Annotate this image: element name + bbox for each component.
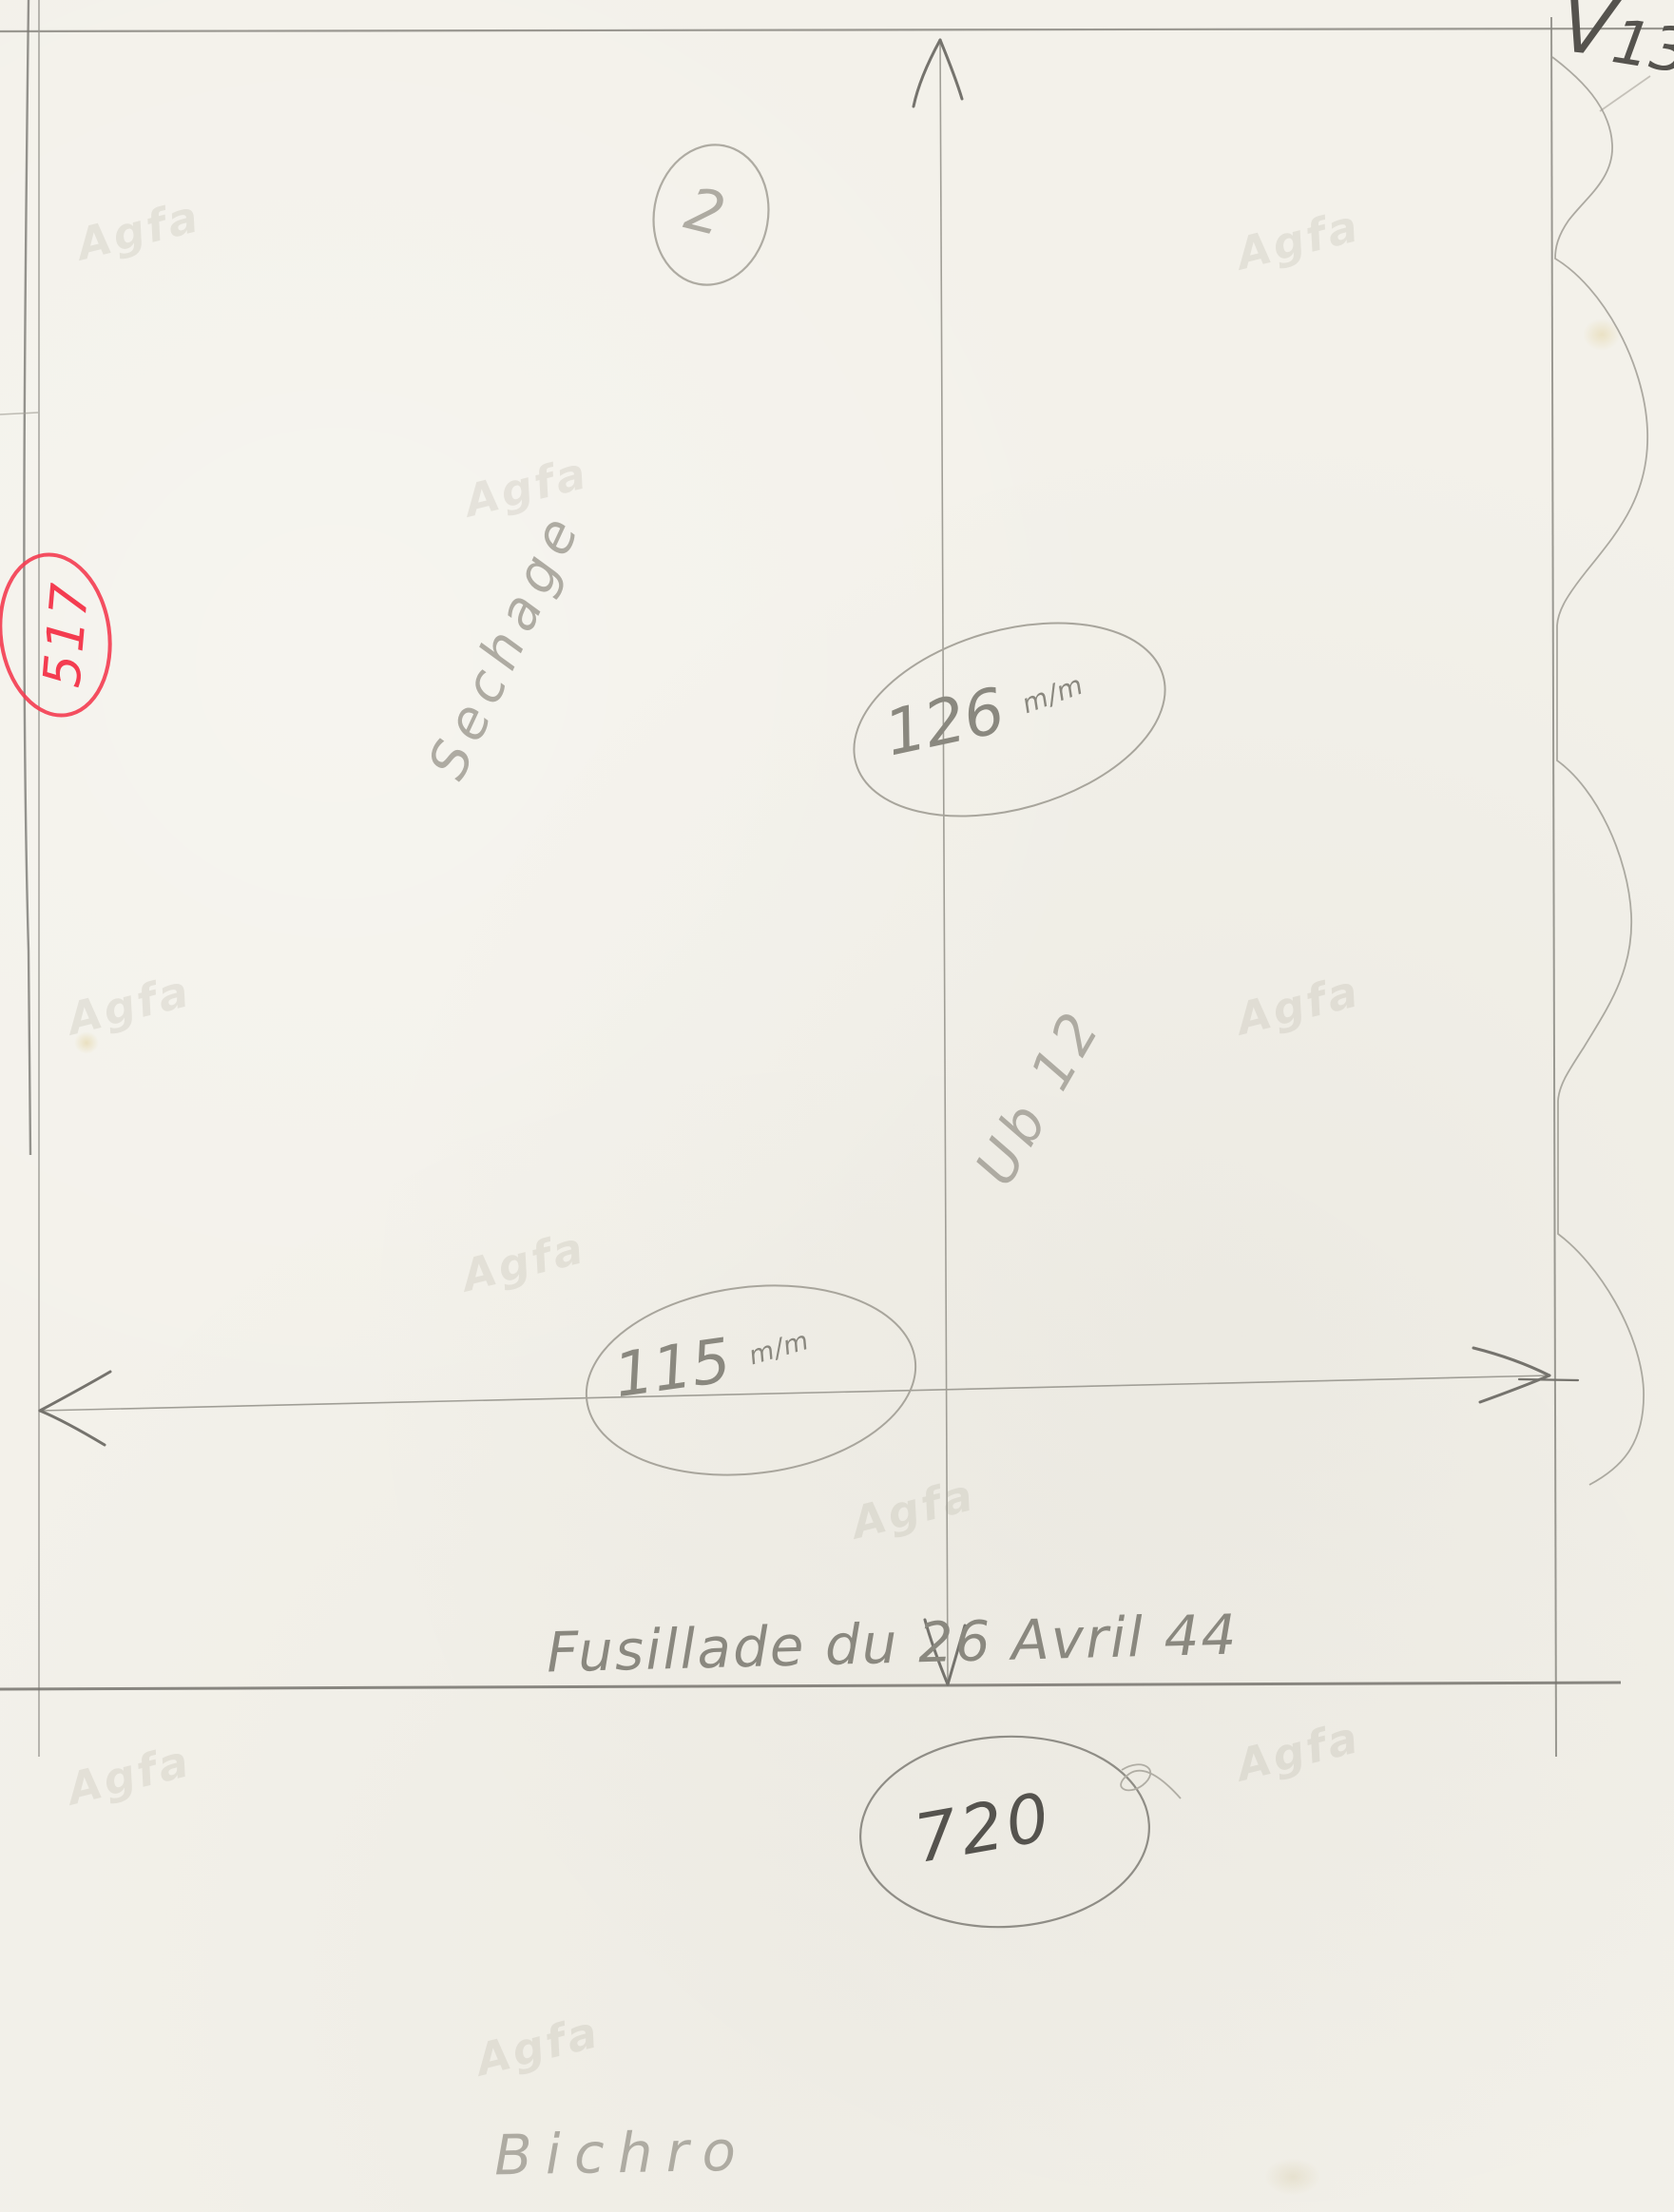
pencil-sketch-layer (0, 0, 1674, 2212)
horizontal-arrowhead-left-bottom (40, 1411, 105, 1445)
process-note: Bichro (494, 2124, 750, 2183)
left-margin-line-outer (24, 0, 30, 1155)
height-dimension-unit: m/m (1019, 671, 1087, 718)
scanned-layout-sheet: Agfa Agfa Agfa Agfa Agfa Agfa Agfa Agfa … (0, 0, 1674, 2212)
horizontal-arrowhead-right-top (1473, 1348, 1549, 1375)
vertical-arrowhead-top-right (940, 40, 962, 99)
bottom-frame-line (0, 1683, 1621, 1689)
left-edge-tick (0, 413, 38, 414)
vertical-arrowhead-top-left (914, 40, 940, 106)
red-index-number: 517 (36, 579, 97, 689)
deckle-edge-wavy-line (1552, 57, 1647, 1485)
horizontal-arrow-tip-tick (1519, 1379, 1578, 1380)
top-frame-line (0, 29, 1674, 31)
caption-line: Fusillade du 26 Avril 44 (546, 1606, 1239, 1680)
horizontal-arrowhead-left-top (40, 1372, 110, 1411)
vertical-dimension-line (940, 40, 948, 1683)
page-number: 13 (1607, 11, 1674, 84)
right-frame-line (1551, 17, 1556, 1757)
width-dimension-unit: m/m (746, 1329, 812, 1371)
